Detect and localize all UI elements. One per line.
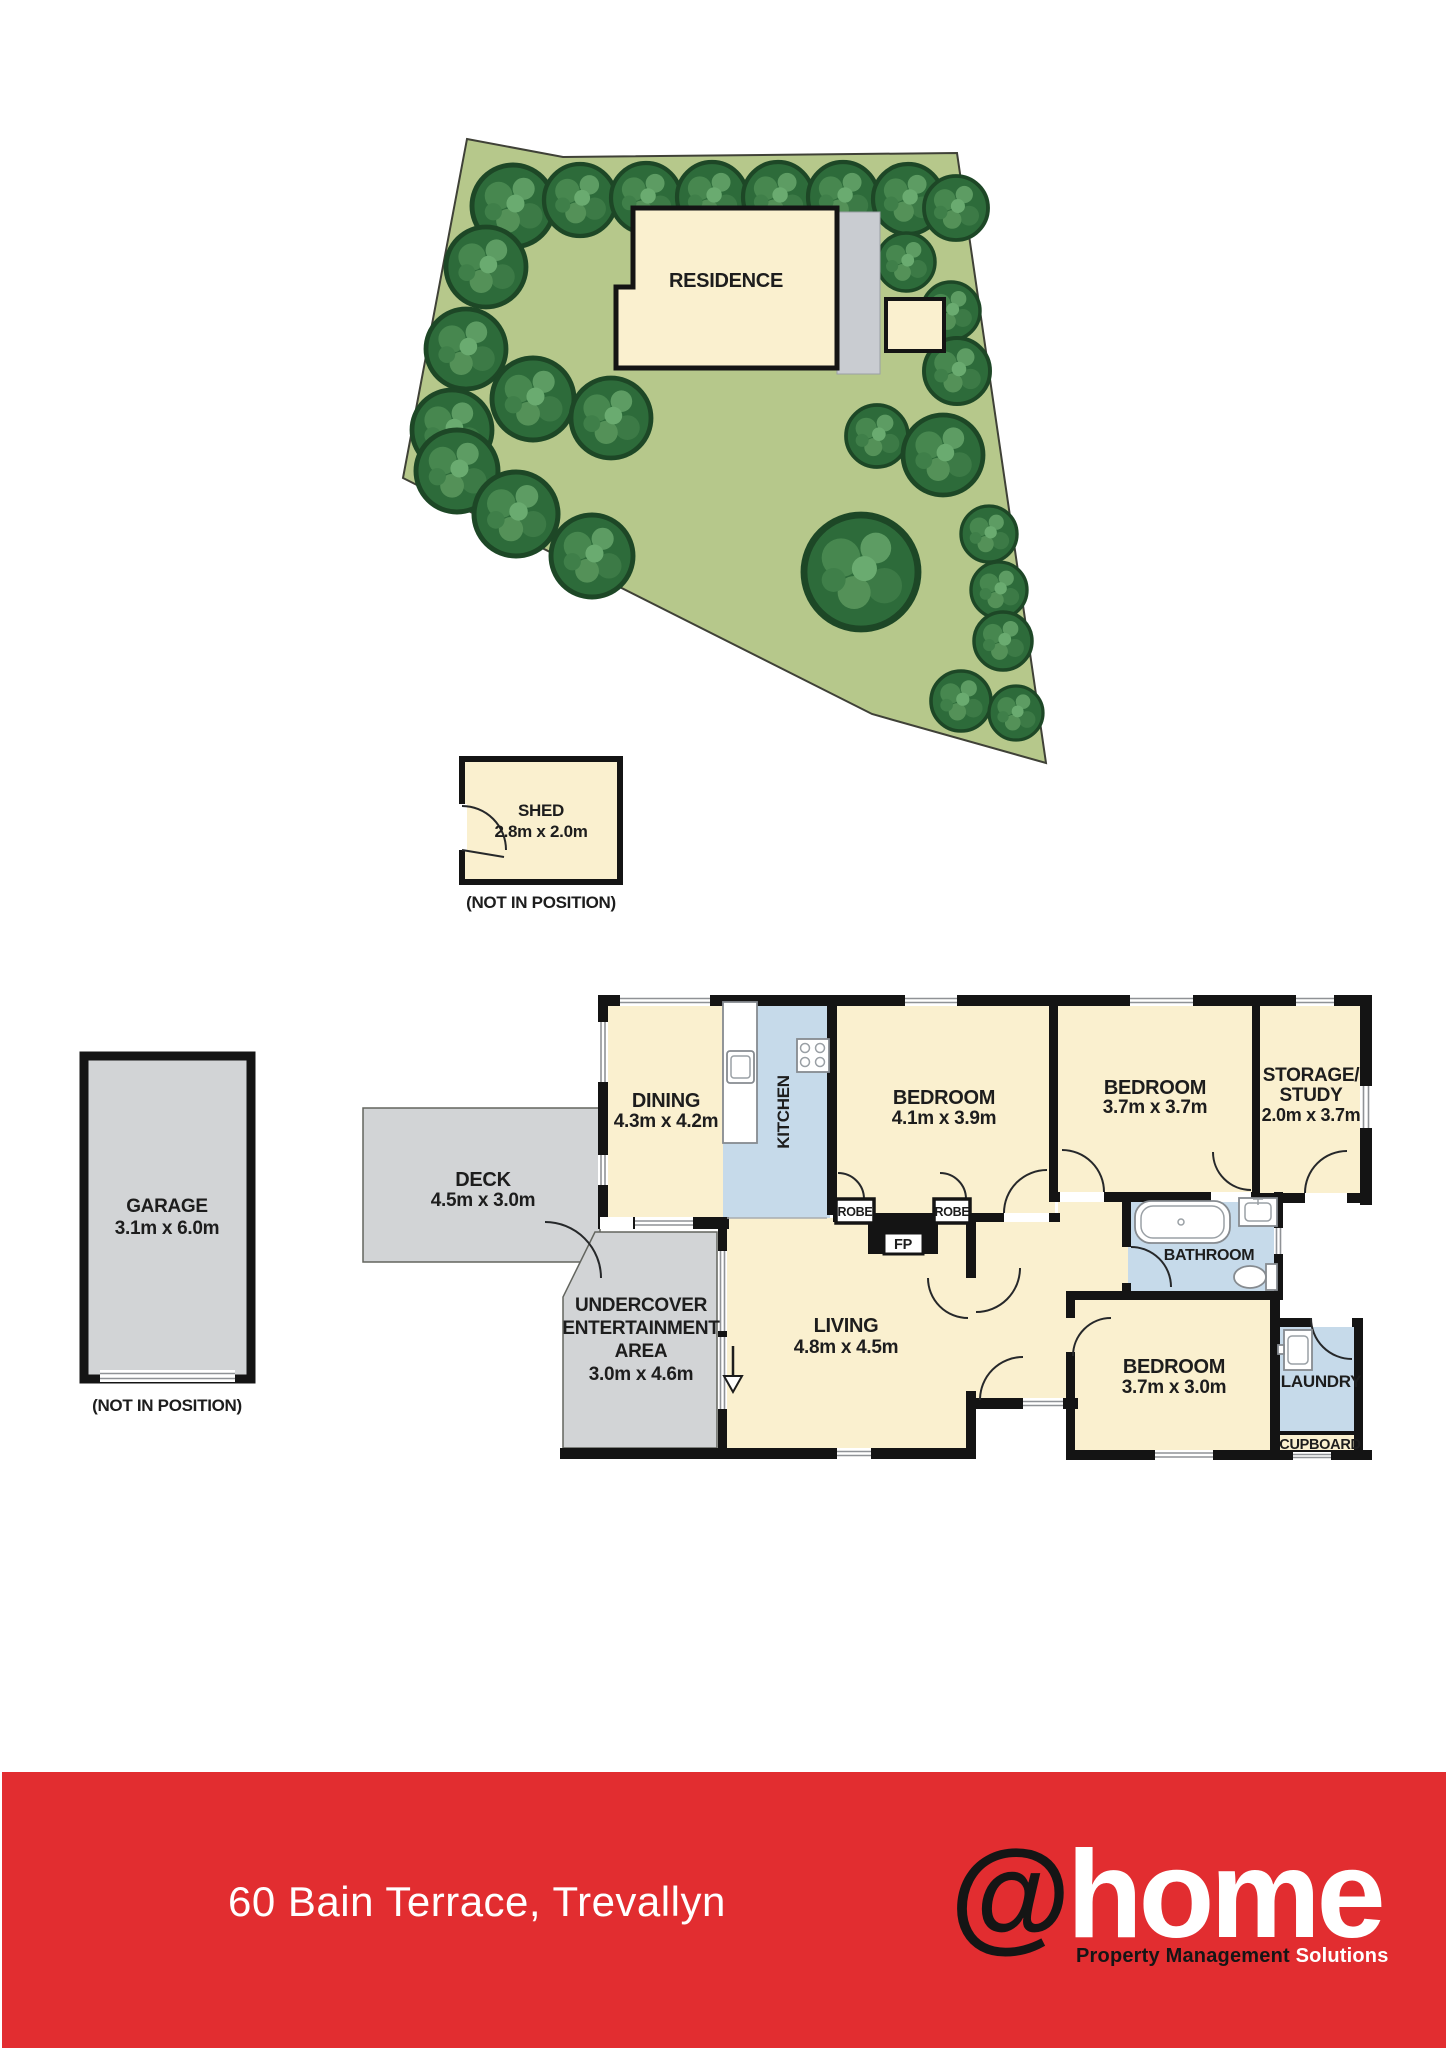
deck-label: DECK [455, 1169, 511, 1191]
wall [1066, 1291, 1075, 1318]
bedroom3-label: BEDROOM [1123, 1356, 1225, 1378]
floorplan-canvas: RESIDENCE SHED 2.8m x 2.0m (NOT IN POSIT… [0, 0, 1448, 2048]
garage-note: (NOT IN POSITION) [92, 1396, 242, 1415]
tree [551, 515, 633, 597]
door-opening [600, 1217, 633, 1229]
bathroom-sink-icon [1239, 1198, 1277, 1226]
garage-dims: 3.1m x 6.0m [115, 1218, 219, 1239]
tagline-dark: Property Management [1076, 1945, 1296, 1967]
fireplace-label: FP [894, 1237, 913, 1253]
living-dims: 4.8m x 4.5m [794, 1337, 898, 1358]
window [1293, 1452, 1331, 1460]
undercover-floor [563, 1232, 717, 1448]
shed-dims: 2.8m x 2.0m [494, 822, 587, 841]
garage-door-opening [100, 1370, 235, 1382]
shed: SHED 2.8m x 2.0m (NOT IN POSITION) [457, 759, 620, 912]
tree [426, 309, 506, 389]
tree [846, 405, 908, 467]
window [598, 1022, 608, 1082]
deck-dims: 4.5m x 3.0m [431, 1190, 535, 1211]
undercover-label-line3: AREA [615, 1341, 668, 1362]
robe-left-label: ROBE [838, 1205, 873, 1219]
shed-label: SHED [518, 801, 564, 820]
bedroom1-label: BEDROOM [893, 1087, 995, 1109]
wall [1122, 1200, 1131, 1247]
living-label: LIVING [814, 1315, 879, 1337]
tree [804, 515, 918, 629]
residence-label: RESIDENCE [669, 270, 783, 292]
tree [974, 612, 1032, 670]
undercover-label-line1: UNDERCOVER [575, 1295, 708, 1316]
door-opening [1311, 1318, 1352, 1327]
dining-dims: 4.3m x 4.2m [614, 1111, 718, 1132]
door-opening [1305, 1193, 1347, 1203]
hall-floor-upper [1058, 1200, 1128, 1216]
site-plan: RESIDENCE [403, 139, 1046, 763]
tree [492, 358, 574, 440]
agency-tagline: Property Management Solutions [1076, 1945, 1389, 1967]
window [1130, 995, 1193, 1006]
shed-door-opening [457, 804, 467, 850]
bathroom-label: BATHROOM [1164, 1247, 1255, 1264]
sink-icon [727, 1051, 754, 1083]
tree [571, 378, 651, 458]
tree [971, 562, 1027, 618]
driveway-strip [837, 212, 880, 374]
logo-at-symbol: @ [950, 1826, 1067, 1964]
window [635, 1217, 693, 1229]
outbuilding [886, 299, 944, 351]
toilet-icon [1234, 1264, 1277, 1290]
garage: GARAGE 3.1m x 6.0m (NOT IN POSITION) [84, 1056, 251, 1415]
tree [903, 415, 983, 495]
tree [989, 686, 1043, 740]
window [620, 995, 710, 1006]
tree [924, 176, 988, 240]
dining-label: DINING [632, 1090, 700, 1112]
shed-outline [462, 759, 620, 882]
tree [446, 227, 526, 307]
tree [961, 506, 1017, 562]
bathtub-icon [1135, 1201, 1230, 1243]
door-opening [1004, 1213, 1049, 1222]
storage-label-line2: STUDY [1280, 1085, 1344, 1106]
window [1274, 1228, 1283, 1254]
bedroom2-label: BEDROOM [1104, 1077, 1206, 1099]
wall [1279, 1431, 1354, 1435]
window [1155, 1450, 1213, 1460]
shed-note: (NOT IN POSITION) [466, 893, 616, 912]
window [1296, 995, 1334, 1006]
wall [560, 1448, 976, 1459]
storage-label-line1: STORAGE/ [1263, 1065, 1361, 1086]
logo-home-text: home [1067, 1826, 1382, 1964]
tree [931, 671, 991, 731]
garage-label: GARAGE [126, 1196, 208, 1217]
laundry-label: LAUNDRY [1281, 1372, 1362, 1391]
agency-logo: @home [950, 1826, 1382, 1964]
undercover-dims: 3.0m x 4.6m [589, 1364, 693, 1385]
window [718, 1337, 727, 1409]
undercover-label-line2: ENTERTAINMENT [562, 1318, 720, 1339]
floorplan-page: RESIDENCE SHED 2.8m x 2.0m (NOT IN POSIT… [0, 0, 1448, 2048]
wall [1270, 1291, 1280, 1460]
tree [544, 164, 616, 236]
bedroom3-dims: 3.7m x 3.0m [1122, 1377, 1226, 1398]
tagline-light: Solutions [1296, 1945, 1389, 1967]
window [1023, 1398, 1063, 1409]
storage-dims: 2.0m x 3.7m [1262, 1105, 1361, 1125]
floor-plan: DINING 4.3m x 4.2m KITCHEN BEDROOM 4.1m … [363, 995, 1372, 1460]
wall [1049, 995, 1058, 1200]
tree [877, 233, 935, 291]
cupboard-label: CUPBOARD [1279, 1437, 1360, 1453]
bedroom2-dims: 3.7m x 3.7m [1103, 1097, 1207, 1118]
window [905, 995, 957, 1006]
window [837, 1448, 871, 1459]
door-opening [1060, 1192, 1104, 1202]
wall [827, 995, 837, 1215]
tree [474, 472, 558, 556]
bedroom1-dims: 4.1m x 3.9m [892, 1108, 996, 1129]
window [598, 1155, 608, 1185]
wall [1252, 995, 1260, 1195]
window [1360, 1086, 1372, 1128]
property-address: 60 Bain Terrace, Trevallyn [228, 1878, 726, 1925]
wall [1066, 1291, 1278, 1300]
kitchen-label: KITCHEN [774, 1075, 793, 1148]
footer-banner: 60 Bain Terrace, Trevallyn @home Propert… [2, 1772, 1446, 2048]
robe-right-label: ROBE [935, 1205, 970, 1219]
stove-icon [797, 1039, 829, 1072]
